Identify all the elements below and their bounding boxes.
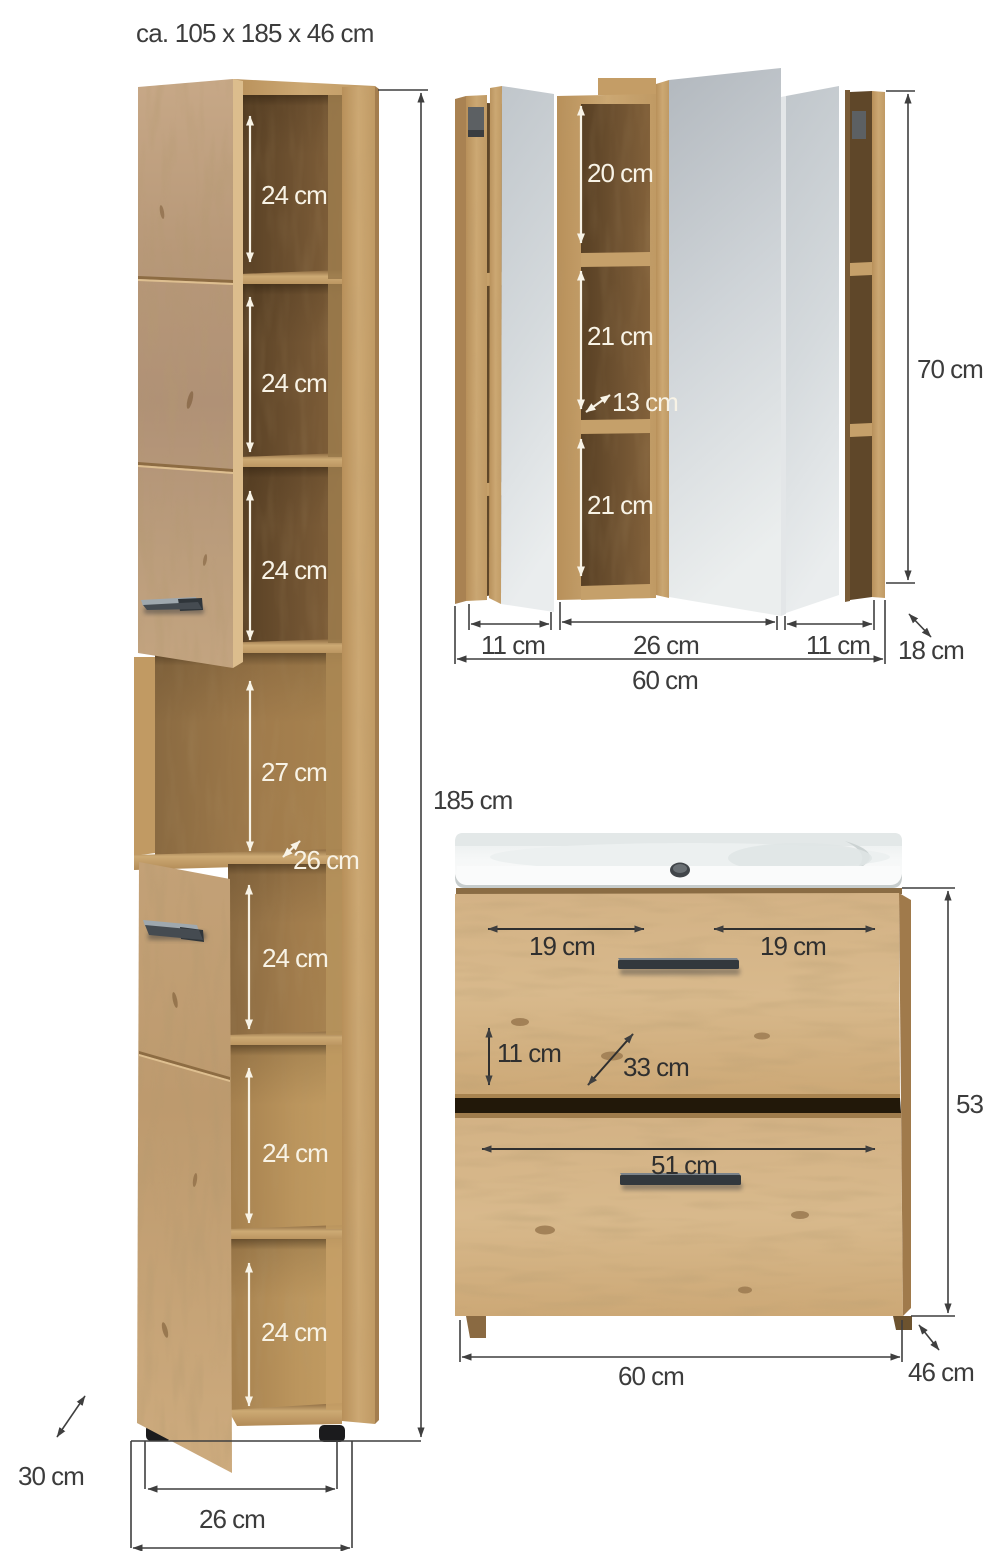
svg-text:11 cm: 11 cm	[806, 630, 870, 660]
svg-text:24 cm: 24 cm	[261, 1317, 327, 1347]
svg-text:26 cm: 26 cm	[293, 845, 359, 875]
svg-text:26 cm: 26 cm	[633, 630, 699, 660]
svg-text:11 cm: 11 cm	[481, 630, 545, 660]
svg-text:11 cm: 11 cm	[497, 1038, 561, 1068]
svg-text:53: 53	[956, 1089, 983, 1119]
svg-text:70 cm: 70 cm	[917, 354, 983, 384]
svg-text:26 cm: 26 cm	[199, 1504, 265, 1534]
svg-text:24 cm: 24 cm	[261, 180, 327, 210]
svg-text:19 cm: 19 cm	[529, 931, 595, 961]
svg-text:33 cm: 33 cm	[623, 1052, 689, 1082]
svg-text:51 cm: 51 cm	[651, 1150, 717, 1180]
svg-text:185 cm: 185 cm	[433, 785, 512, 815]
svg-text:21 cm: 21 cm	[587, 490, 653, 520]
svg-text:ca. 105 x 185 x 46 cm: ca. 105 x 185 x 46 cm	[136, 18, 374, 48]
svg-text:24 cm: 24 cm	[262, 943, 328, 973]
svg-text:60 cm: 60 cm	[632, 665, 698, 695]
svg-text:19 cm: 19 cm	[760, 931, 826, 961]
svg-text:27 cm: 27 cm	[261, 757, 327, 787]
svg-text:13 cm: 13 cm	[612, 387, 678, 417]
svg-text:60 cm: 60 cm	[618, 1361, 684, 1391]
svg-text:46 cm: 46 cm	[908, 1357, 974, 1387]
svg-text:21 cm: 21 cm	[587, 321, 653, 351]
svg-text:30 cm: 30 cm	[18, 1461, 84, 1491]
svg-text:18 cm: 18 cm	[898, 635, 964, 665]
svg-text:24 cm: 24 cm	[261, 555, 327, 585]
svg-text:20 cm: 20 cm	[587, 158, 653, 188]
svg-text:24 cm: 24 cm	[261, 368, 327, 398]
svg-text:24 cm: 24 cm	[262, 1138, 328, 1168]
